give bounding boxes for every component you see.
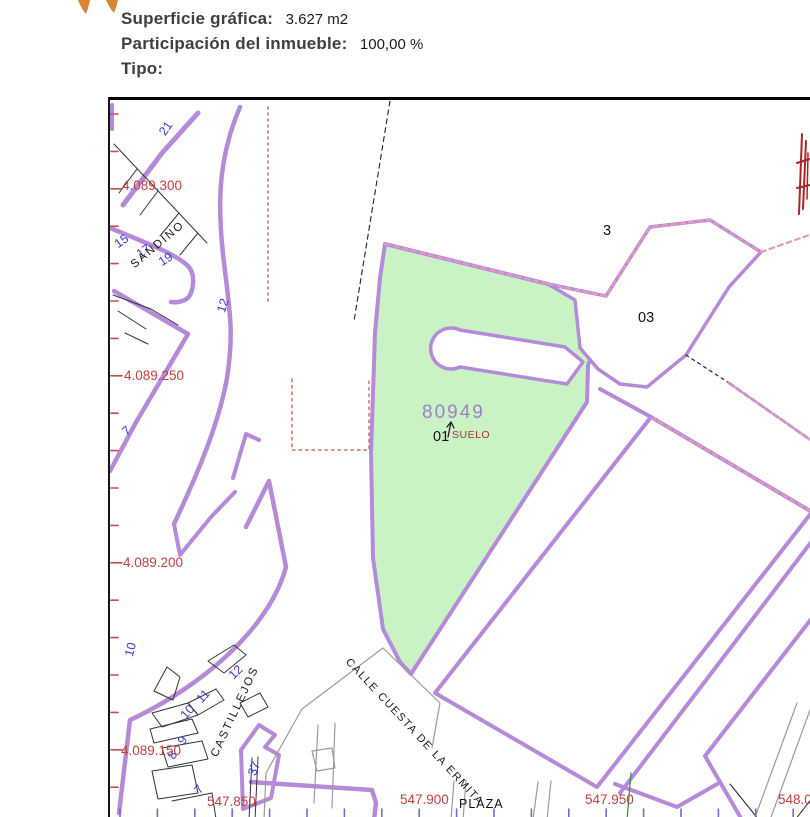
house-number-10-left: 10 [123,641,139,658]
house-number-7-lower: 7 [192,783,206,796]
house-number-7-left: 7 [120,424,133,438]
house-number-12-upper: 12 [215,297,231,314]
superficie-label: Superficie gráfica: [121,9,273,28]
parcel-03: 03 [638,311,654,326]
house-number-11: 11 [194,687,212,705]
superficie-value: 3.627 m2 [286,11,349,28]
superficie-row: Superficie gráfica: 3.627 m2 [121,9,348,29]
parcel-id-80949: 80949 [422,403,485,422]
coord-x-547850: 547.850 [207,795,256,809]
coord-y-4089250: 4.089.250 [124,369,184,383]
house-number-19: 19 [157,250,175,268]
cadastral-map-viewport[interactable]: 214.089.300151719SANDINO124.089.25074.08… [108,97,810,817]
coord-y-4089150: 4.089.150 [121,744,181,758]
street-plaza: PLAZA [459,798,504,811]
house-number-10-lower: 10 [178,703,197,722]
parcel-3: 3 [603,224,611,239]
coord-x-547950: 547.950 [585,793,634,807]
coord-y-4089200: 4.089.200 [123,556,183,570]
house-number-15: 15 [112,232,131,250]
street-cuesta-ermita: CALLE CUESTA DE LA ERMITA [343,657,485,808]
map-labels-layer: 214.089.300151719SANDINO124.089.25074.08… [110,100,810,817]
participacion-row: Participación del inmueble: 100,00 % [121,34,423,54]
parcel-suelo: SUELO [452,430,490,441]
coord-x-547900: 547.900 [400,793,449,807]
tipo-row: Tipo: [121,59,171,79]
parcel-sub-01: 01 [433,430,449,445]
tipo-label: Tipo: [121,59,163,78]
participacion-label: Participación del inmueble: [121,34,347,53]
house-number-21: 21 [157,119,175,138]
coord-y-4089300: 4.089.300 [122,179,182,193]
house-number-37: 37 [246,760,263,777]
cadastral-parcel-page: Superficie gráfica: 3.627 m2 Participaci… [0,0,810,817]
coord-x-54800: 548.00 [778,793,810,807]
participacion-value: 100,00 % [360,36,423,53]
